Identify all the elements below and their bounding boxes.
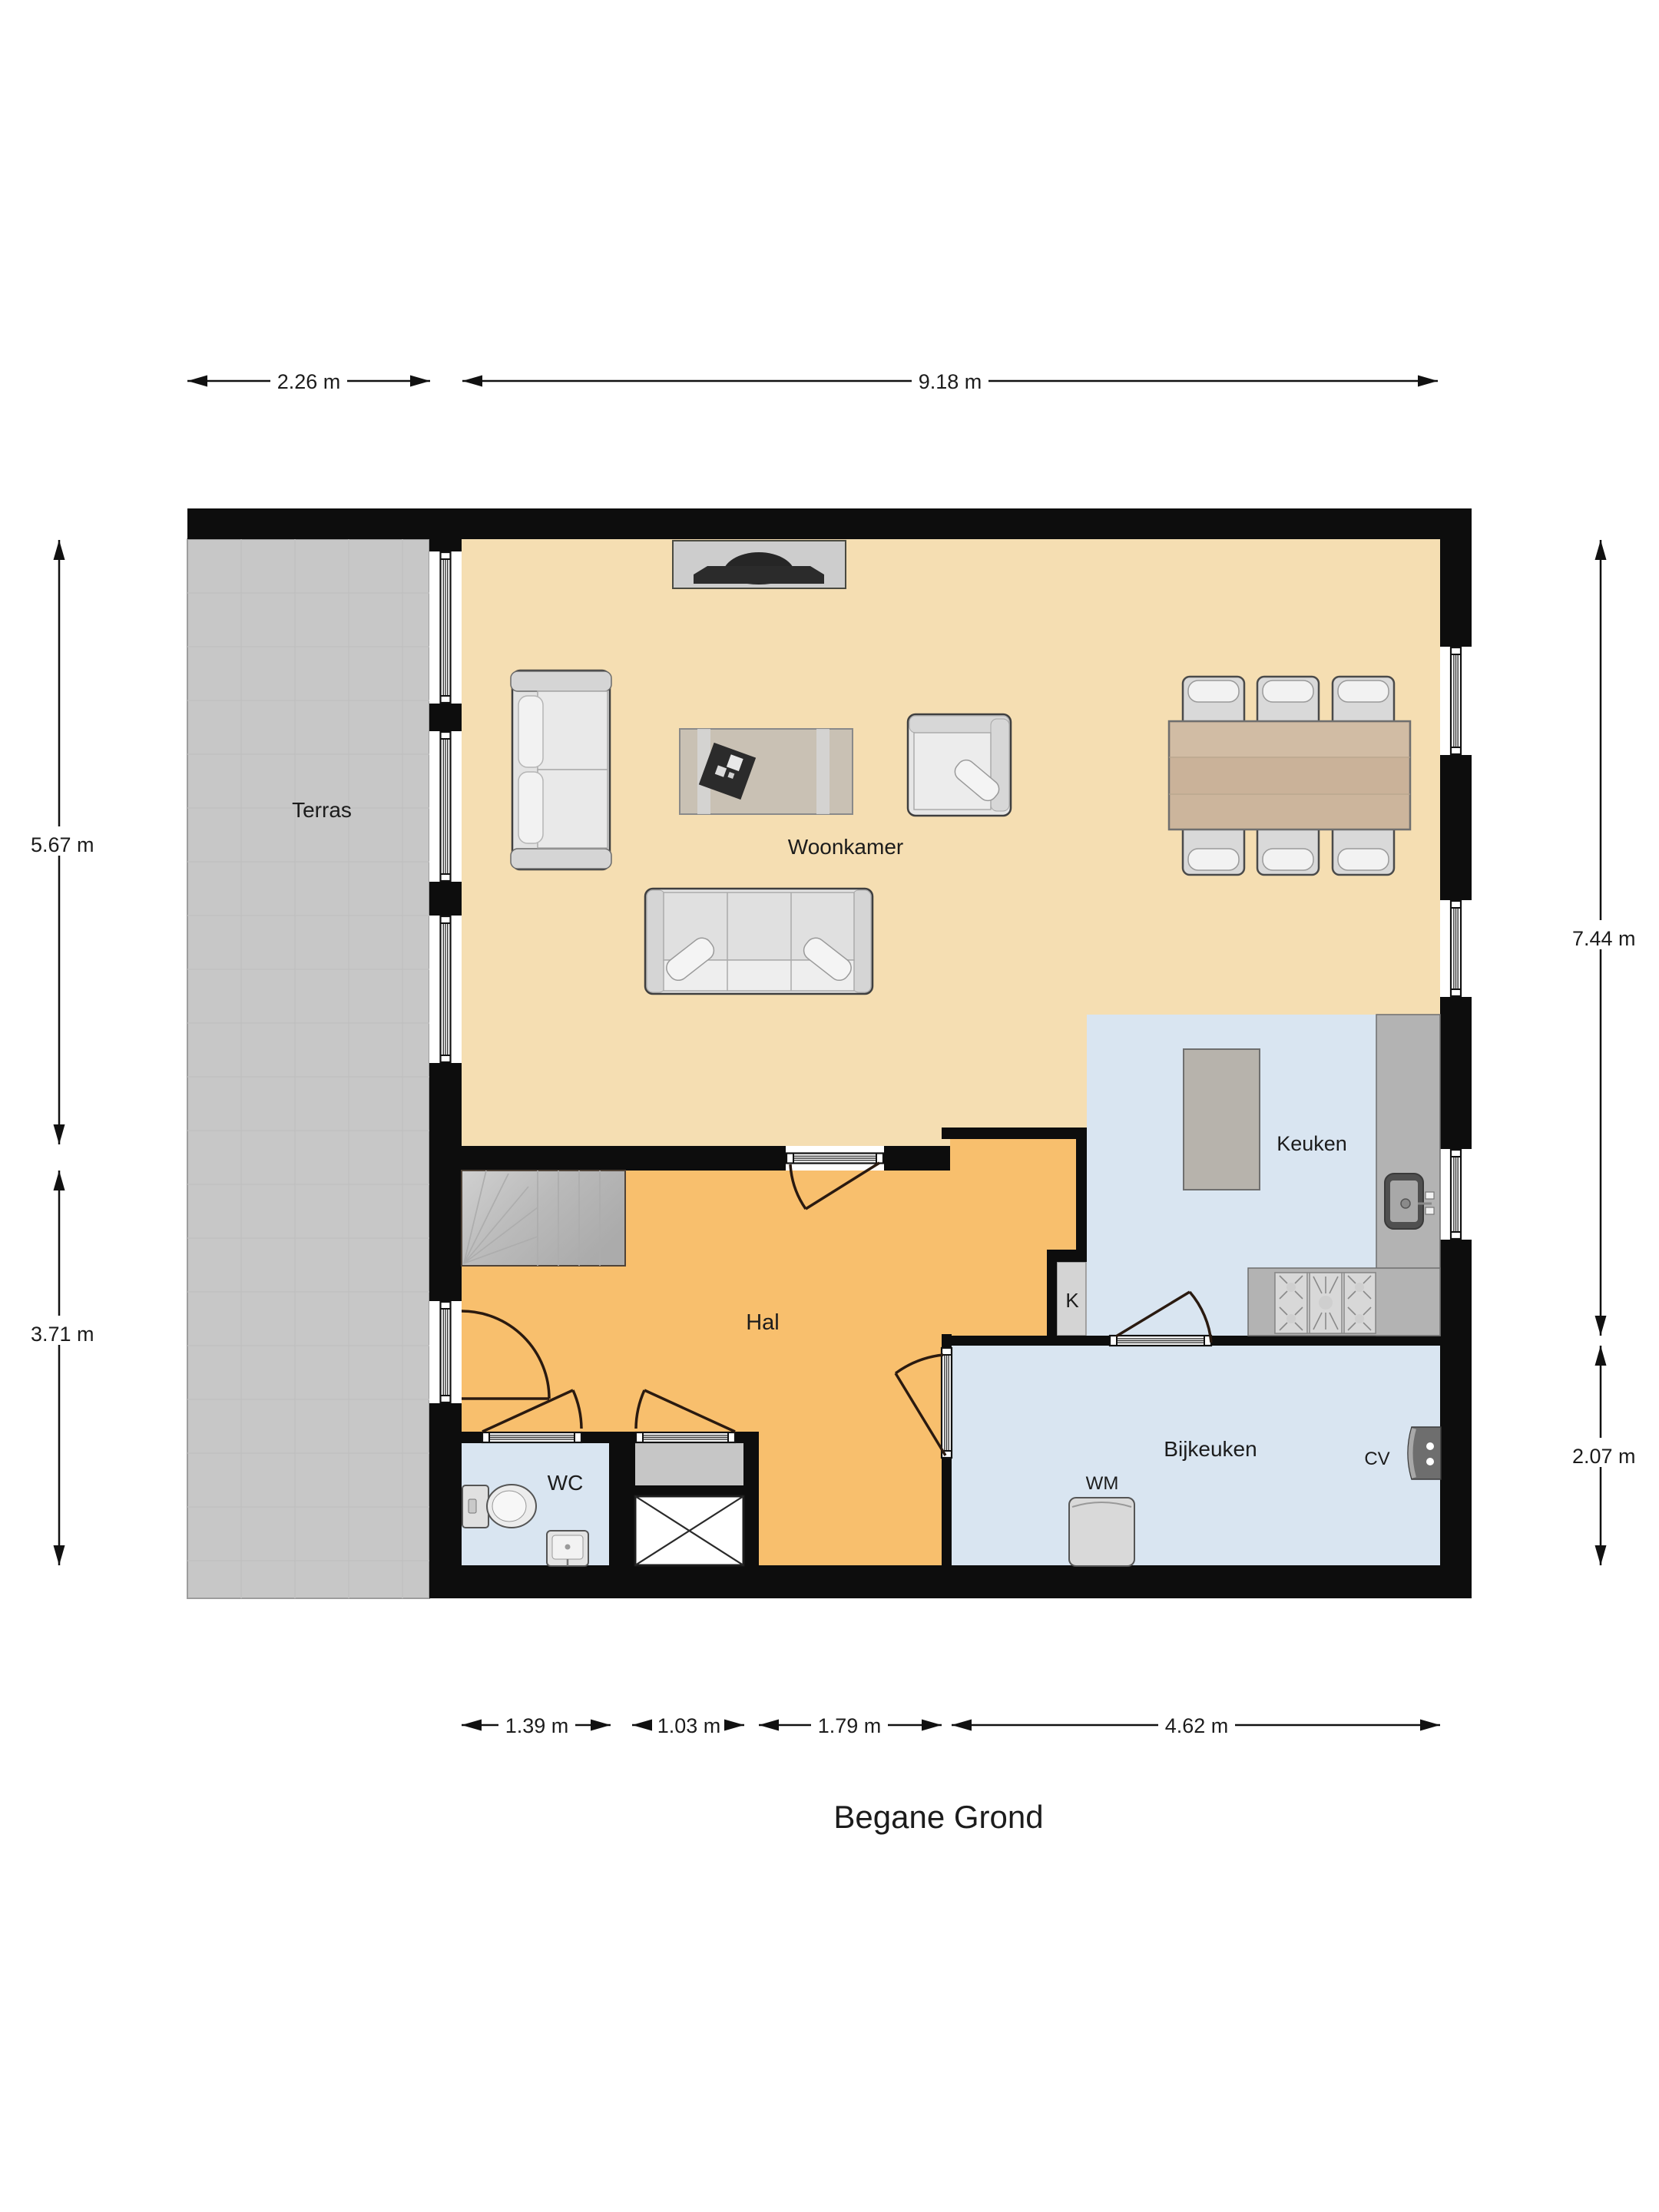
svg-text:2.26 m: 2.26 m <box>277 370 341 393</box>
svg-text:1.39 m: 1.39 m <box>505 1714 569 1737</box>
svg-text:9.18 m: 9.18 m <box>919 370 982 393</box>
svg-text:Bijkeuken: Bijkeuken <box>1164 1437 1257 1461</box>
svg-text:CV: CV <box>1364 1449 1389 1469</box>
svg-text:Woonkamer: Woonkamer <box>788 835 903 859</box>
svg-text:1.03 m: 1.03 m <box>657 1714 721 1737</box>
svg-text:4.62 m: 4.62 m <box>1165 1714 1229 1737</box>
svg-text:Keuken: Keuken <box>1277 1132 1347 1155</box>
svg-text:Hal: Hal <box>746 1310 780 1335</box>
svg-text:WC: WC <box>548 1471 584 1495</box>
svg-text:5.67 m: 5.67 m <box>31 833 94 856</box>
svg-text:7.44 m: 7.44 m <box>1572 927 1636 950</box>
svg-text:Terras: Terras <box>292 798 352 822</box>
svg-text:K: K <box>1065 1289 1079 1312</box>
svg-text:Begane Grond: Begane Grond <box>833 1799 1043 1835</box>
svg-text:WM: WM <box>1086 1473 1119 1494</box>
svg-text:1.79 m: 1.79 m <box>818 1714 882 1737</box>
svg-text:3.71 m: 3.71 m <box>31 1323 94 1346</box>
svg-text:2.07 m: 2.07 m <box>1572 1445 1636 1468</box>
